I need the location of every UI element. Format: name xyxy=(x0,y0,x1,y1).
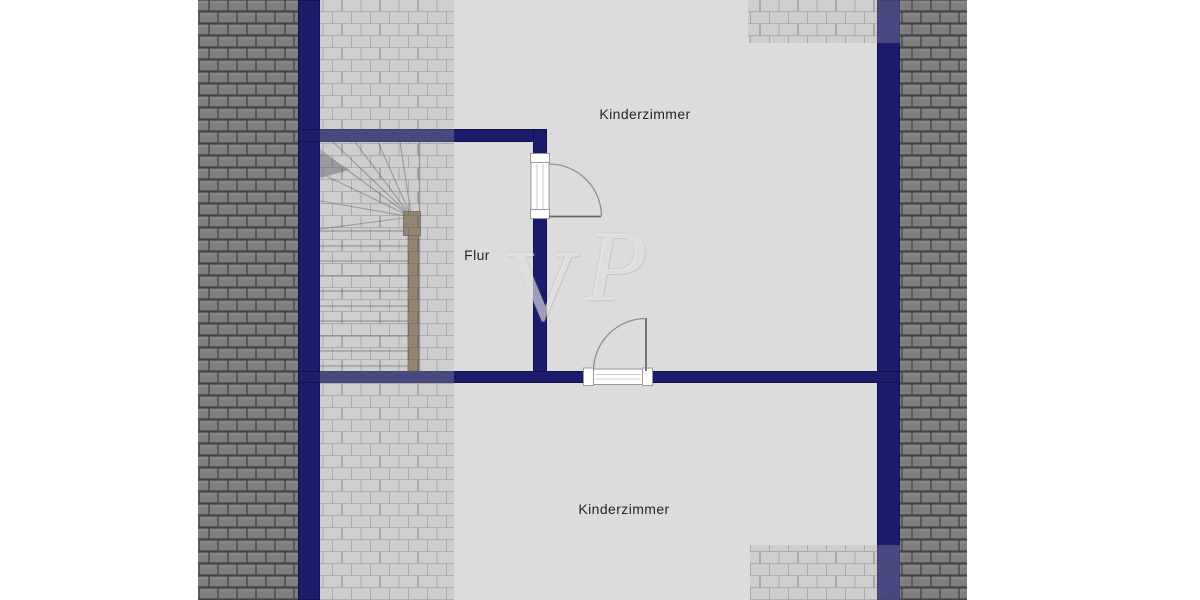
wall-bottom-horizontal-right xyxy=(650,371,900,383)
wall-bottom-horizontal-left xyxy=(298,371,586,383)
wall-flur-vertical-lower xyxy=(533,218,547,382)
room-label-kinderzimmer-bottom: Kinderzimmer xyxy=(578,501,669,517)
floor-plan: Kinderzimmer Flur Kinderzimmer V P xyxy=(0,0,1200,600)
wall-flur-vertical-upper xyxy=(533,129,547,155)
room-label-kinderzimmer-top: Kinderzimmer xyxy=(599,106,690,122)
wall-top-horizontal xyxy=(298,129,547,142)
roof-tiles-left xyxy=(198,0,298,600)
exterior-wall-left xyxy=(298,0,320,600)
exterior-wall-right xyxy=(877,0,900,600)
roof-tiles-right xyxy=(900,0,967,600)
room-label-flur: Flur xyxy=(464,247,490,263)
